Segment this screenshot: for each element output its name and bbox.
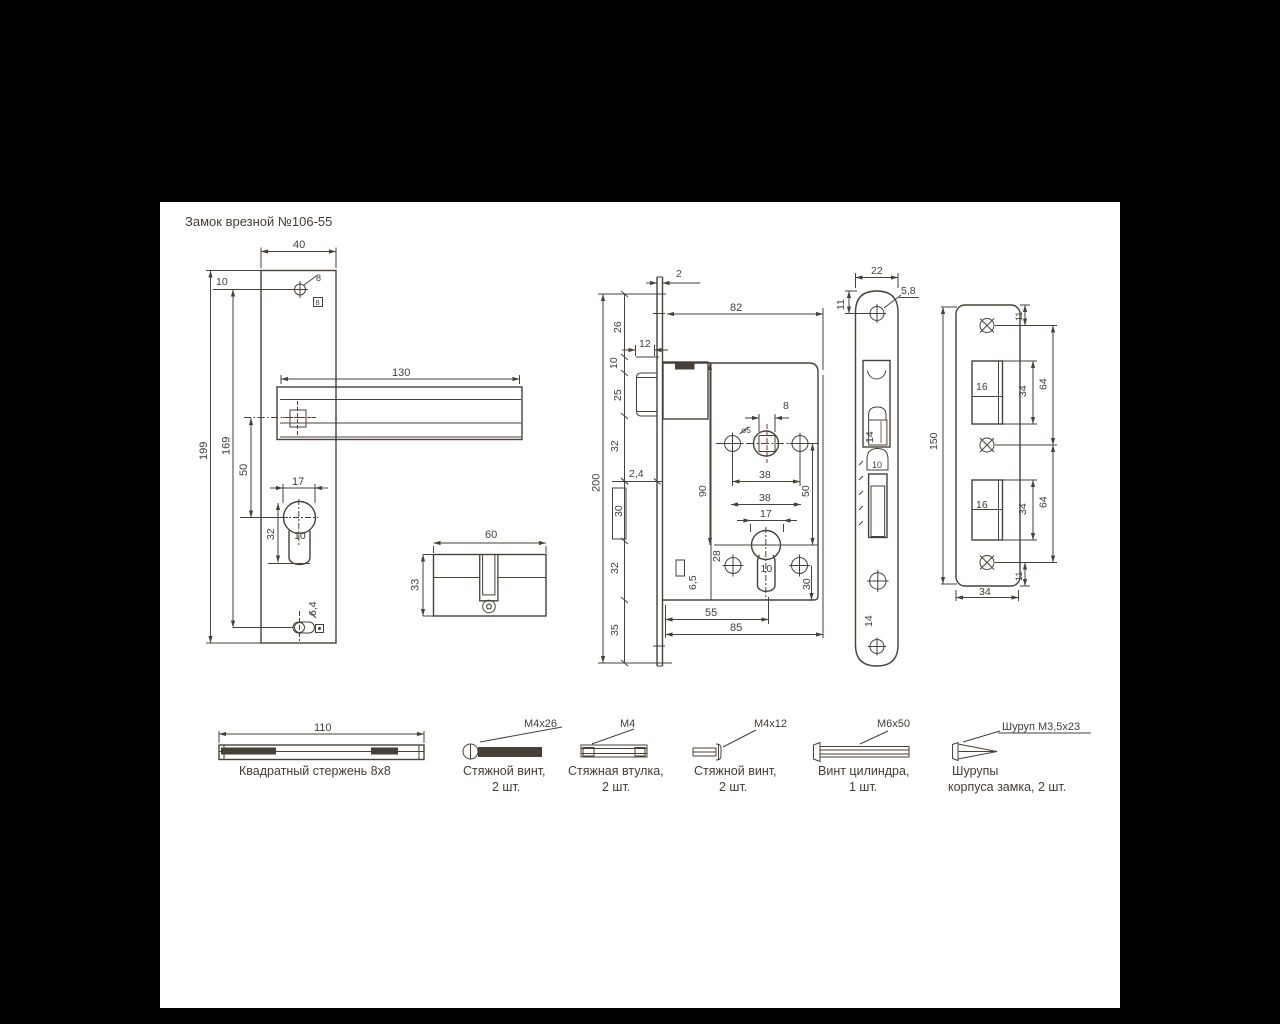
svg-text:6,5: 6,5 xyxy=(687,575,699,590)
svg-text:Шуруп М3,5х23: Шуруп М3,5х23 xyxy=(1002,721,1080,733)
svg-text:28: 28 xyxy=(711,550,723,562)
svg-text:2,4: 2,4 xyxy=(629,468,644,480)
svg-text:17: 17 xyxy=(760,508,772,520)
svg-text:М6х50: М6х50 xyxy=(877,718,910,730)
svg-text:26: 26 xyxy=(612,321,624,333)
svg-text:17: 17 xyxy=(292,476,304,488)
svg-text:Шурупы: Шурупы xyxy=(952,764,998,778)
svg-text:85: 85 xyxy=(730,622,742,634)
svg-text:10: 10 xyxy=(294,530,306,542)
svg-text:38: 38 xyxy=(759,469,771,481)
svg-text:М4х12: М4х12 xyxy=(754,718,787,730)
svg-text:55: 55 xyxy=(705,607,717,619)
svg-text:Винт цилиндра,: Винт цилиндра, xyxy=(818,764,909,778)
svg-text:Квадратный стержень 8х8: Квадратный стержень 8х8 xyxy=(239,764,391,778)
svg-text:Стяжной винт,: Стяжной винт, xyxy=(694,764,777,778)
svg-text:Стяжной винт,: Стяжной винт, xyxy=(463,764,546,778)
svg-text:8: 8 xyxy=(316,273,321,283)
svg-text:16: 16 xyxy=(976,499,988,511)
svg-text:ø5: ø5 xyxy=(741,425,751,435)
svg-text:34: 34 xyxy=(1017,385,1029,397)
svg-text:Замок врезной №106-55: Замок врезной №106-55 xyxy=(185,214,333,229)
svg-text:11: 11 xyxy=(835,299,847,310)
svg-text:32: 32 xyxy=(609,562,621,574)
svg-text:14: 14 xyxy=(863,615,875,627)
svg-text:16: 16 xyxy=(976,381,988,393)
svg-text:8: 8 xyxy=(316,298,320,307)
svg-text:90: 90 xyxy=(697,485,709,497)
svg-text:корпуса замка, 2 шт.: корпуса замка, 2 шт. xyxy=(948,780,1066,794)
svg-text:30: 30 xyxy=(801,578,813,590)
svg-text:8: 8 xyxy=(783,400,789,412)
svg-text:30: 30 xyxy=(613,505,625,517)
svg-text:32: 32 xyxy=(265,528,277,540)
svg-text:60: 60 xyxy=(485,529,497,541)
svg-text:200: 200 xyxy=(591,474,603,492)
svg-text:25: 25 xyxy=(612,389,624,401)
svg-text:12: 12 xyxy=(639,338,651,350)
svg-text:50: 50 xyxy=(800,485,812,497)
svg-text:6,4: 6,4 xyxy=(307,601,319,616)
svg-text:М4х26: М4х26 xyxy=(524,718,557,730)
svg-text:10: 10 xyxy=(761,563,773,575)
svg-text:11: 11 xyxy=(1014,312,1024,321)
svg-text:169: 169 xyxy=(221,437,233,455)
svg-text:14: 14 xyxy=(864,431,876,443)
svg-text:199: 199 xyxy=(198,442,210,460)
svg-text:5,8: 5,8 xyxy=(901,285,916,297)
svg-text:2 шт.: 2 шт. xyxy=(492,780,520,794)
svg-text:64: 64 xyxy=(1038,378,1050,390)
svg-text:2 шт.: 2 шт. xyxy=(602,780,630,794)
svg-text:34: 34 xyxy=(1017,503,1029,515)
svg-text:Стяжная втулка,: Стяжная втулка, xyxy=(568,764,664,778)
svg-text:10: 10 xyxy=(216,276,228,288)
svg-text:64: 64 xyxy=(1038,496,1050,508)
svg-text:82: 82 xyxy=(730,302,742,314)
svg-text:35: 35 xyxy=(609,624,621,636)
svg-text:130: 130 xyxy=(392,367,410,379)
svg-text:10: 10 xyxy=(872,460,882,470)
svg-text:40: 40 xyxy=(293,239,305,251)
svg-text:38: 38 xyxy=(759,492,771,504)
svg-text:1 шт.: 1 шт. xyxy=(849,780,877,794)
svg-text:2: 2 xyxy=(676,268,682,280)
svg-text:50: 50 xyxy=(238,464,250,476)
svg-text:М4: М4 xyxy=(620,718,635,730)
svg-text:10: 10 xyxy=(608,357,620,369)
svg-text:33: 33 xyxy=(410,579,422,591)
svg-text:150: 150 xyxy=(928,432,940,450)
svg-text:2 шт.: 2 шт. xyxy=(719,780,747,794)
svg-text:110: 110 xyxy=(314,722,332,734)
svg-text:22: 22 xyxy=(871,265,883,277)
svg-text:32: 32 xyxy=(609,440,621,452)
svg-text:34: 34 xyxy=(979,586,991,598)
svg-text:11: 11 xyxy=(1014,572,1024,581)
